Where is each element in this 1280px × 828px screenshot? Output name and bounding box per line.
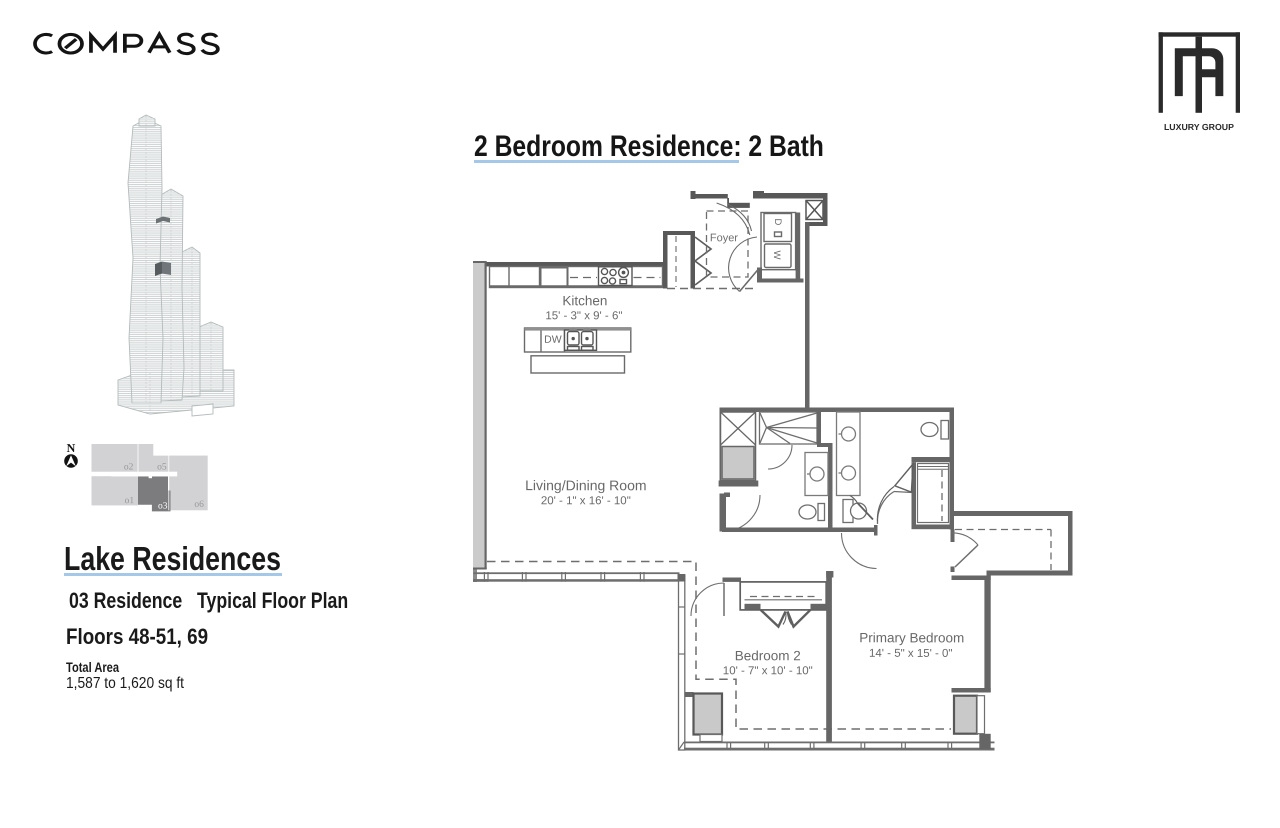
svg-text:Kitchen: Kitchen [562,293,607,308]
svg-text:Foyer: Foyer [710,232,738,244]
svg-text:15' - 3" x 9' - 6": 15' - 3" x 9' - 6" [545,310,622,322]
svg-text:o1: o1 [125,496,135,506]
svg-text:Living/Dining Room: Living/Dining Room [525,477,646,493]
svg-text:o3: o3 [158,502,168,512]
svg-text:14' - 5" x 15' - 0": 14' - 5" x 15' - 0" [869,648,953,660]
svg-text:LUXURY GROUP: LUXURY GROUP [1164,122,1234,132]
svg-text:Primary Bedroom: Primary Bedroom [859,630,964,645]
svg-text:20' - 1" x 16' - 10": 20' - 1" x 16' - 10" [541,495,631,507]
svg-text:o5: o5 [157,463,167,473]
svg-text:DW: DW [544,334,562,346]
svg-text:Bedroom 2: Bedroom 2 [735,648,801,663]
svg-text:o2: o2 [124,463,134,473]
svg-text:N: N [67,441,76,455]
svg-text:o6: o6 [194,500,204,510]
svg-text:10' - 7" x 10' - 10": 10' - 7" x 10' - 10" [723,665,813,677]
svg-text:W: W [771,251,782,260]
svg-text:D: D [772,219,783,226]
